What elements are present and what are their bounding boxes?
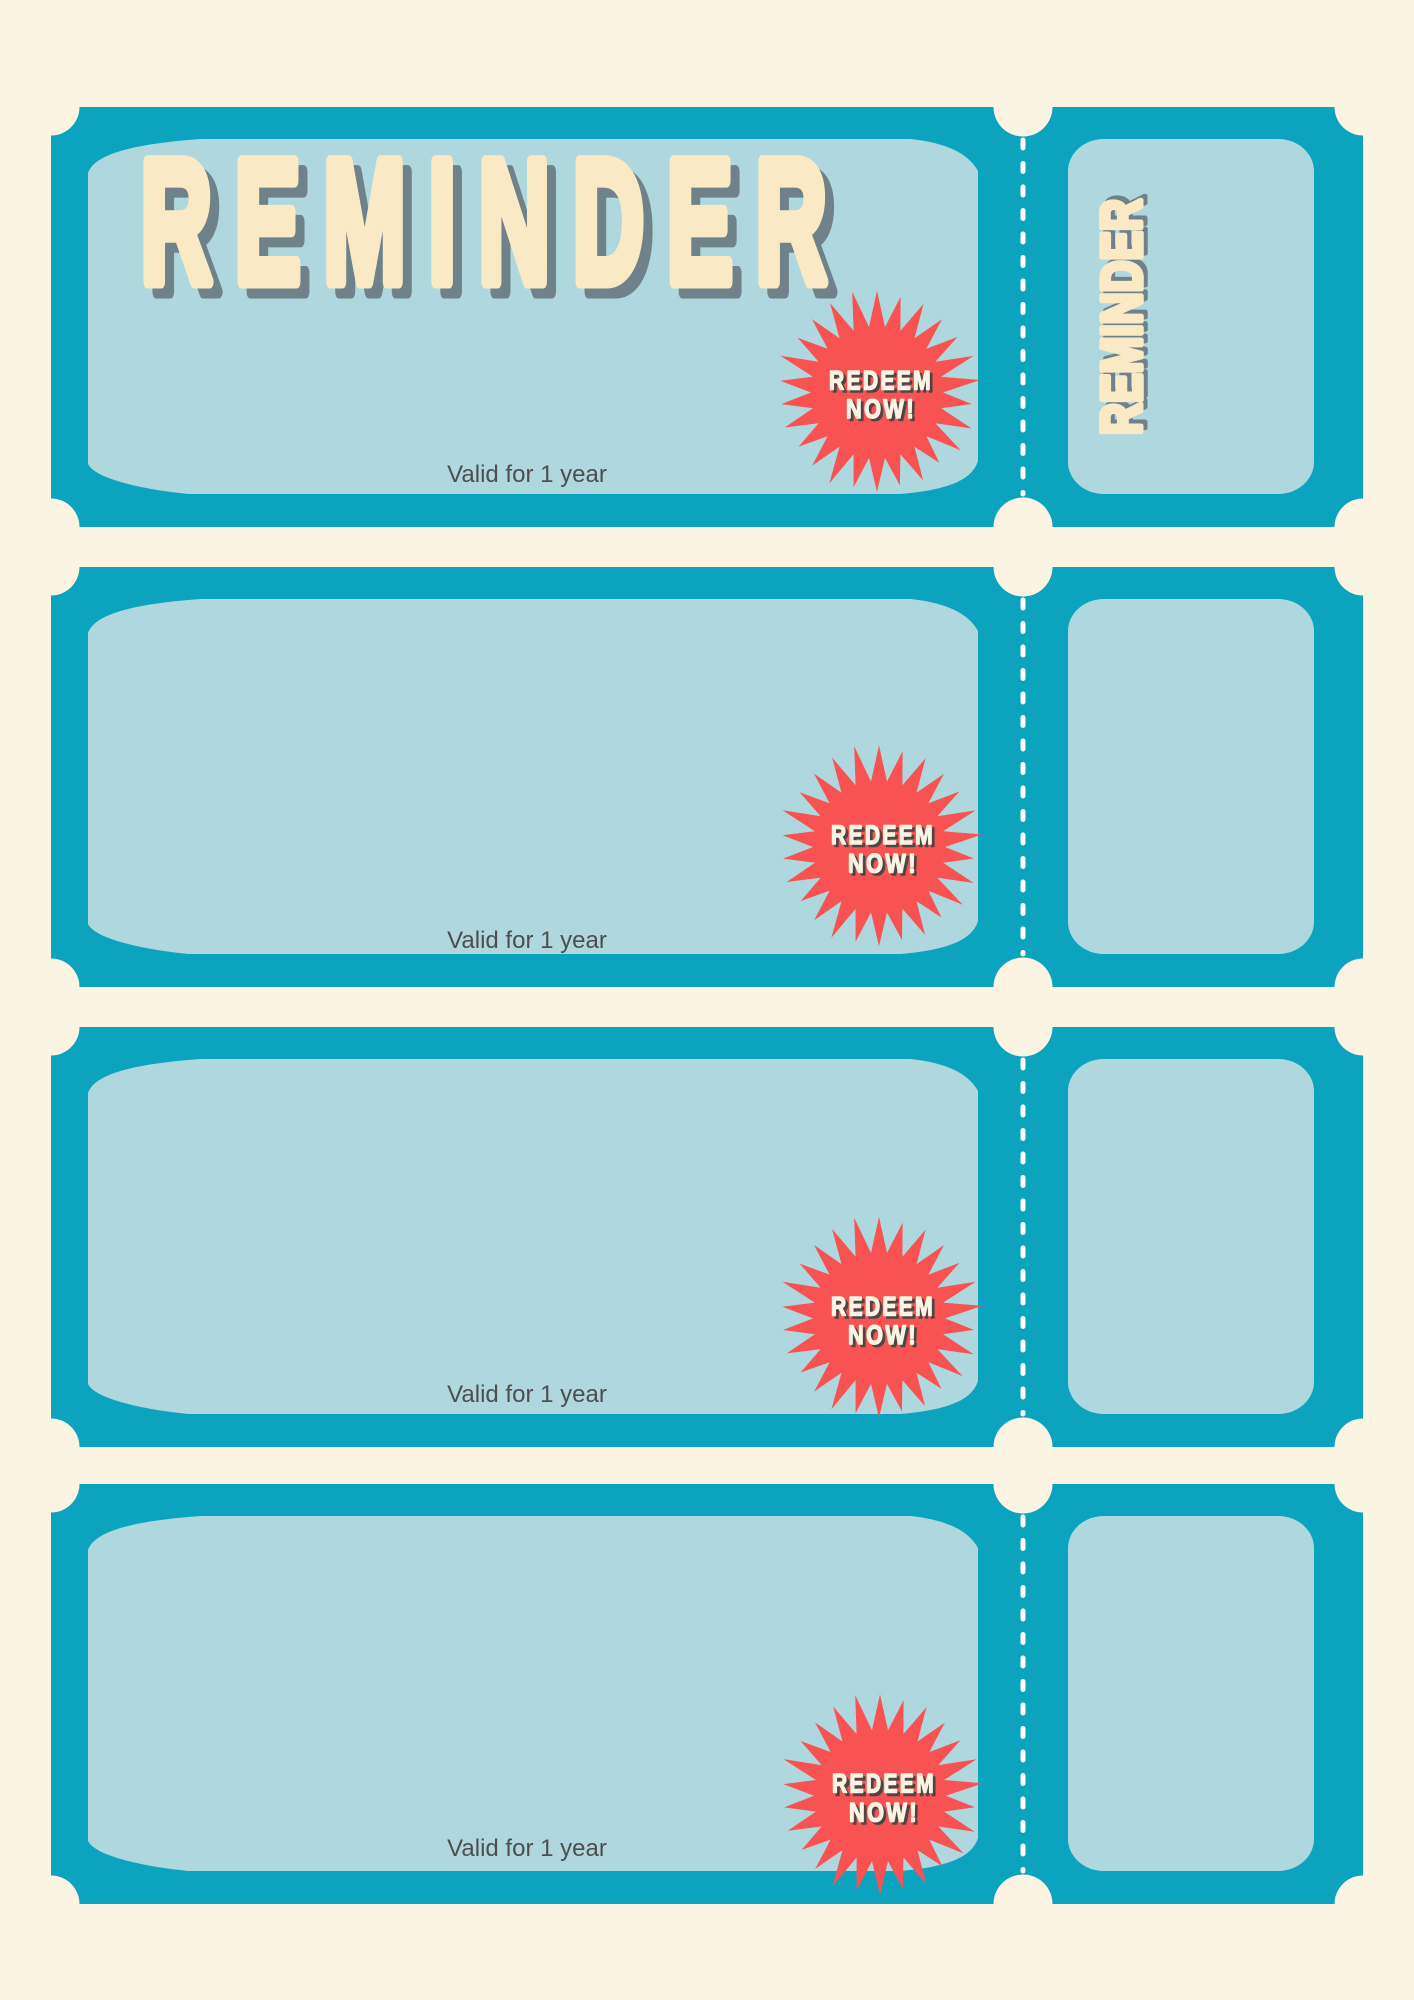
svg-text:Valid for 1 year: Valid for 1 year (447, 927, 607, 954)
svg-text:Valid for 1 year: Valid for 1 year (447, 461, 607, 488)
svg-text:REDEEM: REDEEM (831, 1291, 935, 1321)
svg-text:NOW!: NOW! (848, 1320, 918, 1350)
svg-text:Valid for 1 year: Valid for 1 year (447, 1835, 607, 1862)
svg-text:NOW!: NOW! (848, 849, 918, 879)
svg-text:Valid for 1 year: Valid for 1 year (447, 1381, 607, 1408)
svg-text:REMINDER: REMINDER (141, 125, 850, 320)
svg-text:NOW!: NOW! (846, 394, 916, 424)
svg-text:REDEEM: REDEEM (831, 820, 935, 850)
svg-text:REDEEM: REDEEM (829, 365, 933, 395)
svg-text:REDEEM: REDEEM (832, 1769, 936, 1799)
svg-text:NOW!: NOW! (849, 1797, 919, 1827)
svg-text:REMINDER: REMINDER (1090, 199, 1154, 435)
